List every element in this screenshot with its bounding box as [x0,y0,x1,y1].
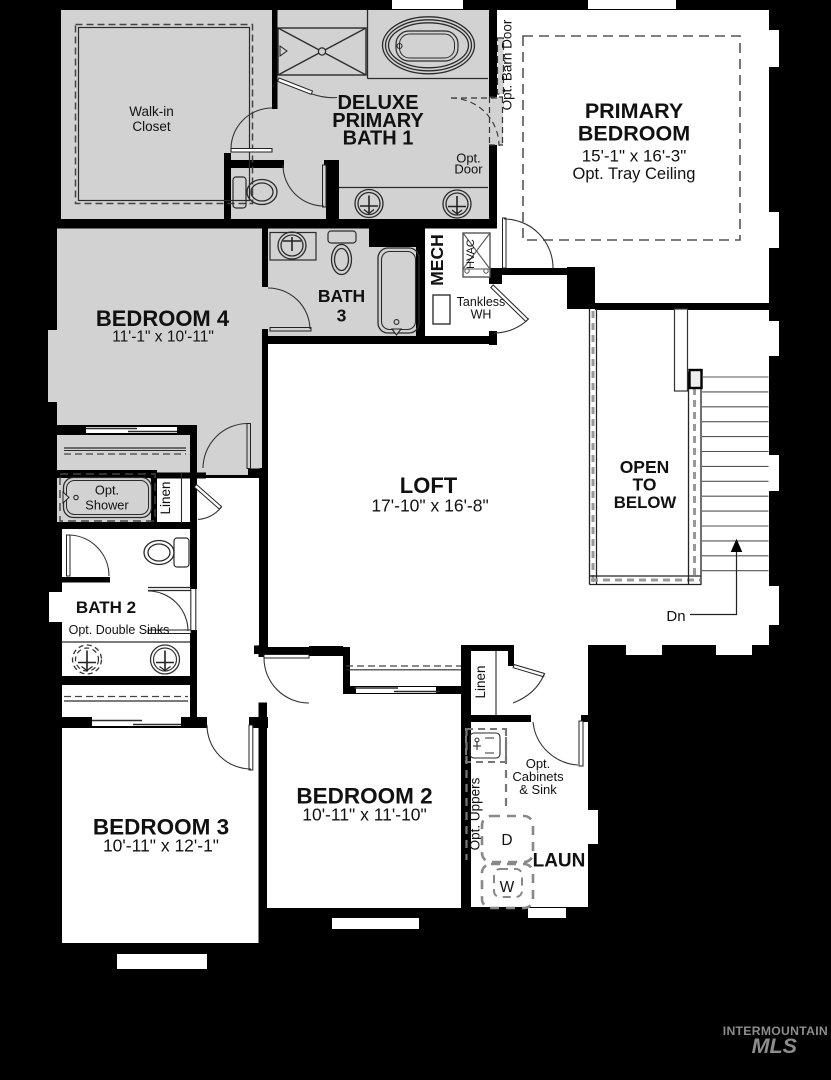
svg-text:MLS: MLS [752,1034,798,1058]
svg-text:3: 3 [337,306,347,326]
svg-text:BEDROOM 4: BEDROOM 4 [96,306,230,331]
svg-text:Walk-in: Walk-in [129,104,174,119]
svg-text:PRIMARY: PRIMARY [585,99,683,123]
svg-text:Linen: Linen [158,481,173,514]
svg-text:Opt. Tray Ceiling: Opt. Tray Ceiling [573,165,696,183]
svg-text:W: W [500,879,515,896]
svg-text:MECH: MECH [427,234,447,286]
svg-text:Opt.: Opt. [95,483,119,498]
svg-text:Opt. Double Sinks: Opt. Double Sinks [69,623,170,637]
svg-text:LAUN: LAUN [533,851,586,872]
svg-text:BATH: BATH [318,286,365,306]
svg-text:17'-10" x 16'-8": 17'-10" x 16'-8" [371,496,488,516]
svg-text:BEDROOM: BEDROOM [578,122,690,146]
svg-text:TO: TO [633,475,657,495]
svg-text:10'-11" x 12'-1": 10'-11" x 12'-1" [103,836,219,856]
svg-text:10'-11" x 11'-10": 10'-11" x 11'-10" [302,805,427,825]
svg-text:Dn: Dn [666,608,685,625]
svg-text:15'-1" x 16'-3": 15'-1" x 16'-3" [582,147,687,166]
svg-text:D: D [501,832,512,849]
svg-text:Closet: Closet [132,119,171,134]
svg-text:Door: Door [454,162,483,177]
svg-text:Shower: Shower [85,498,129,513]
svg-text:BELOW: BELOW [614,493,677,512]
svg-text:HVAC: HVAC [465,239,477,269]
svg-text:WH: WH [471,308,492,322]
svg-text:BATH 2: BATH 2 [76,598,136,617]
svg-text:BATH 1: BATH 1 [343,128,414,150]
svg-text:11'-1" x 10'-11": 11'-1" x 10'-11" [112,329,214,346]
svg-text:Linen: Linen [473,665,488,698]
svg-text:Opt. Uppers: Opt. Uppers [468,777,483,850]
svg-text:LOFT: LOFT [400,473,458,498]
svg-text:& Sink: & Sink [519,782,557,797]
